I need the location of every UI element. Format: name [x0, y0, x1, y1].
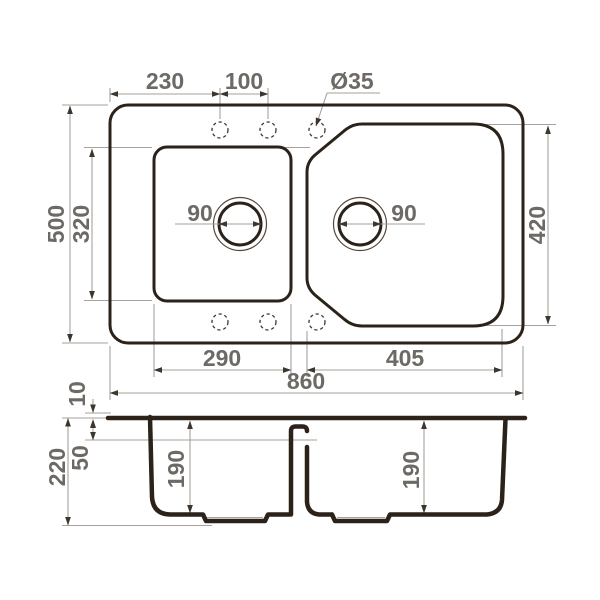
technical-drawing-canvas: 230 100 Ø35 500 320 420 90 90 290 405 86…: [0, 0, 600, 600]
dim-label-right-bowl-inner-depth: 190: [398, 451, 424, 489]
dim-label-right-drain: 90: [391, 200, 417, 226]
faucet-hole: [260, 122, 276, 138]
dim-label-hole-offset: 230: [146, 68, 184, 94]
dim-label-overall-height: 220: [44, 448, 70, 486]
faucet-hole: [309, 314, 325, 330]
dim-label-hole-spacing: 100: [225, 68, 263, 94]
section-dimension-labels: 10 50 220 190 190: [44, 381, 424, 489]
dim-label-right-bowl-width: 405: [386, 345, 425, 371]
section-divider-right: [307, 447, 332, 515]
dim-label-left-bowl-width: 290: [203, 345, 241, 371]
top-view-dimension-labels: 230 100 Ø35 500 320 420 90 90 290 405 86…: [43, 68, 550, 394]
dim-label-overall-width: 860: [287, 368, 325, 394]
section-view: 10 50 220 190 190: [44, 381, 525, 525]
dim-label-overall-depth: 500: [43, 205, 69, 243]
dim-label-hole-diameter: Ø35: [330, 68, 374, 94]
dim-label-left-bowl-depth: 320: [68, 205, 94, 243]
dim-label-right-bowl-depth: 420: [524, 206, 550, 244]
dim-label-left-drain: 90: [187, 200, 213, 226]
dim-label-left-bowl-inner-depth: 190: [163, 450, 189, 488]
top-view-dimension-lines: [62, 88, 556, 400]
faucet-hole: [212, 314, 228, 330]
sink-outer-body: [110, 105, 523, 343]
faucet-hole: [212, 122, 228, 138]
sink-drawing-svg: 230 100 Ø35 500 320 420 90 90 290 405 86…: [0, 0, 600, 600]
leader-line-o35: [316, 93, 327, 126]
sink-outline: [110, 105, 523, 343]
dim-label-divider-level: 50: [67, 445, 93, 471]
top-view: 230 100 Ø35 500 320 420 90 90 290 405 86…: [43, 68, 556, 400]
dim-label-rim-height: 10: [64, 381, 90, 407]
faucet-hole: [260, 314, 276, 330]
